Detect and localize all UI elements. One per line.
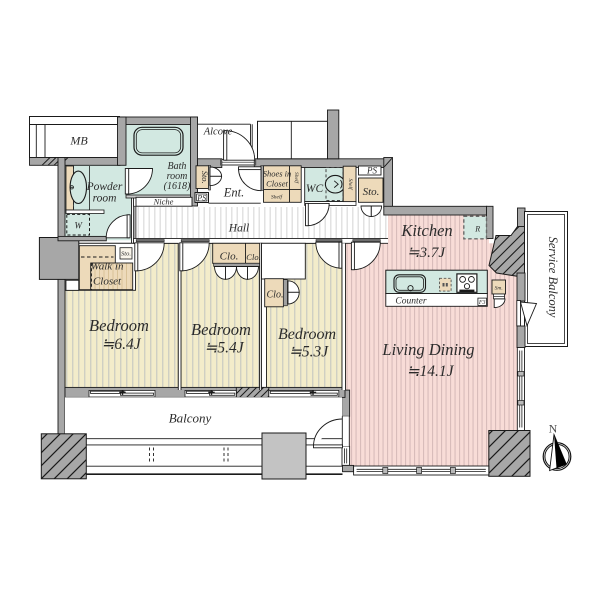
svg-text:Closet: Closet xyxy=(266,179,288,189)
svg-text:Walk in: Walk in xyxy=(91,261,124,273)
svg-text:Clo.: Clo. xyxy=(267,290,284,301)
svg-text:≒14.1J: ≒14.1J xyxy=(406,363,454,380)
svg-text:Counter: Counter xyxy=(395,297,426,307)
svg-text:Ent.: Ent. xyxy=(223,186,244,200)
svg-text:Shoes in: Shoes in xyxy=(263,169,292,179)
svg-text:≒3.7J: ≒3.7J xyxy=(407,245,446,261)
svg-text:Shelf: Shelf xyxy=(293,172,300,184)
svg-text:Clo.: Clo. xyxy=(246,252,260,262)
svg-text:≒5.4J: ≒5.4J xyxy=(204,340,244,357)
svg-text:Closet: Closet xyxy=(93,276,122,288)
svg-text:≒5.3J: ≒5.3J xyxy=(289,344,329,361)
svg-text:Service Balcony: Service Balcony xyxy=(546,237,560,318)
svg-text:Sto.: Sto. xyxy=(121,251,131,258)
svg-text:Bedroom: Bedroom xyxy=(89,316,149,335)
svg-text:R: R xyxy=(474,225,480,234)
svg-text:PS: PS xyxy=(196,193,206,202)
svg-text:Sto.: Sto. xyxy=(363,186,380,198)
svg-text:Bedroom: Bedroom xyxy=(278,326,336,343)
svg-text:Bedroom: Bedroom xyxy=(191,320,251,339)
svg-text:PS: PS xyxy=(366,166,377,176)
svg-text:Alcove: Alcove xyxy=(203,127,233,138)
svg-text:Kitchen: Kitchen xyxy=(400,221,452,240)
svg-text:room: room xyxy=(93,193,117,205)
svg-text:Shelf: Shelf xyxy=(271,193,283,200)
svg-text:N: N xyxy=(549,422,558,436)
svg-text:≒6.4J: ≒6.4J xyxy=(101,336,141,353)
svg-text:Sm.: Sm. xyxy=(495,286,503,292)
svg-text:Living Dining: Living Dining xyxy=(381,340,474,359)
svg-text:Clo.: Clo. xyxy=(220,251,239,263)
svg-text:WC: WC xyxy=(306,183,324,195)
svg-text:Balcony: Balcony xyxy=(169,411,212,426)
svg-text:MB: MB xyxy=(69,134,88,148)
svg-text:Niche: Niche xyxy=(153,197,174,207)
svg-text:(1618): (1618) xyxy=(164,181,191,192)
svg-text:F3: F3 xyxy=(478,300,486,306)
svg-text:Shelf: Shelf xyxy=(347,179,354,191)
svg-text:Powder: Powder xyxy=(86,181,123,193)
svg-text:Hall: Hall xyxy=(228,223,249,235)
